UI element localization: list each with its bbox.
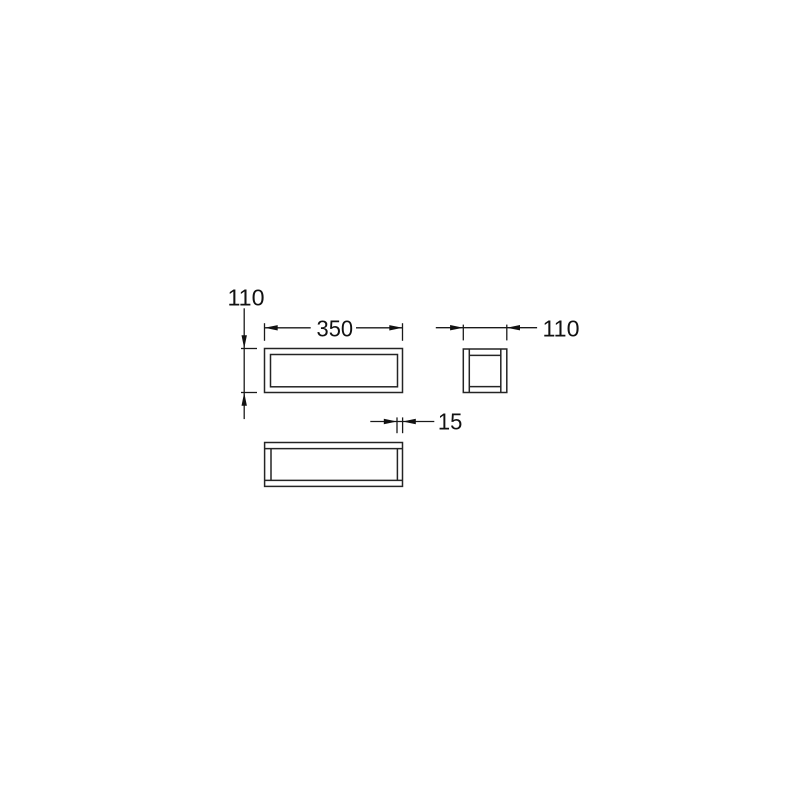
svg-text:110: 110 <box>543 316 580 342</box>
svg-text:15: 15 <box>438 408 463 434</box>
svg-text:350: 350 <box>317 315 354 341</box>
svg-text:110: 110 <box>228 284 265 310</box>
